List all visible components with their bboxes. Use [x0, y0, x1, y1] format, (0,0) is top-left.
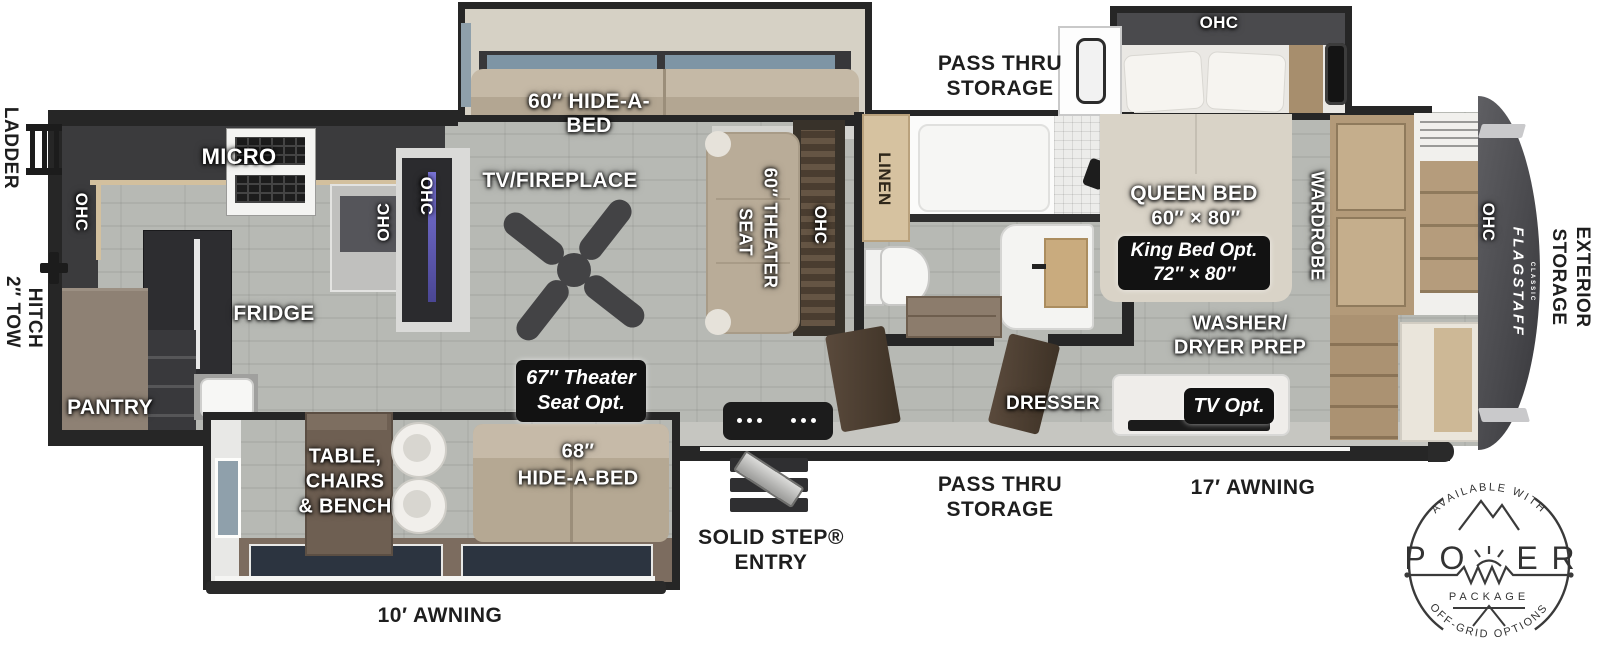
- chair-seat: [403, 434, 431, 462]
- tv-option-label: TV Opt.: [1193, 394, 1264, 419]
- ladder-label: LADDER: [0, 107, 21, 189]
- tow-hitch-label-line2: HITCH: [23, 288, 45, 349]
- burner-grate: [235, 175, 305, 203]
- tow-hitch-label-line1: 2″ TOW: [1, 276, 23, 348]
- slideout-hide-a-bed-60: [458, 2, 872, 122]
- ladder-rung: [54, 130, 59, 170]
- badge-letter-o: O: [1440, 540, 1465, 576]
- awning-roller-rear: [206, 581, 666, 594]
- armrest: [705, 131, 731, 157]
- hitch-bar: [40, 263, 68, 273]
- mat-dot: [791, 418, 796, 423]
- slide-window-pane: [487, 55, 657, 69]
- badge-letter-r: R: [1551, 540, 1574, 576]
- hide-a-bed-60-label-line1: 60″ HIDE-A-: [528, 90, 650, 114]
- washer-dryer-label-line2: DRYER PREP: [1174, 337, 1306, 360]
- washer-dryer-label-line1: WASHER/: [1192, 313, 1287, 336]
- mat-dot: [737, 418, 742, 423]
- exterior-storage-label-line1: EXTERIOR: [1571, 226, 1593, 327]
- wardrobe-cabinet: [1330, 115, 1414, 315]
- pass-thru-top-label-line1: PASS THRU: [938, 52, 1062, 76]
- vent-lines: [1420, 121, 1478, 147]
- king-bed-option-badge: King Bed Opt. 72″ × 80″: [1118, 236, 1270, 290]
- pillow: [1123, 50, 1205, 113]
- awning-roller-endcap: [1428, 441, 1454, 462]
- sofa-cushion-split: [663, 69, 666, 115]
- slide-window-pane: [665, 55, 835, 69]
- ohc-label-entertainment: OHC: [416, 177, 436, 216]
- pantry-label: PANTRY: [67, 396, 153, 420]
- pass-thru-compartment: [1058, 26, 1122, 116]
- ohc-label-theater: OHC: [810, 206, 830, 245]
- step-edge: [908, 315, 996, 317]
- awning-front-label: 17′ AWNING: [1191, 476, 1316, 500]
- cap-accent-strip: [1478, 408, 1530, 422]
- brand-series: CLASSIC: [1529, 262, 1535, 302]
- cabinet-door: [1336, 217, 1406, 307]
- hide-a-bed-60-label-line2: BED: [566, 114, 611, 138]
- range-cooktop: [226, 128, 316, 216]
- solid-step-label-line2: ENTRY: [735, 551, 808, 575]
- armrest: [705, 309, 731, 335]
- linen-label: LINEN: [874, 152, 894, 206]
- power-package-badge: AVAILABLE WITH OFF-GRID OPTIONS P O E R …: [1401, 476, 1577, 652]
- theater-seat-label-line2: SEAT: [735, 208, 756, 256]
- shower-glass: [908, 214, 1122, 222]
- table-chairs-label-line2: CHAIRS: [306, 471, 384, 494]
- ohc-label-rear-corner: OHC: [71, 193, 91, 232]
- bath-wall-bottom-right: [1048, 334, 1134, 346]
- fridge-label: FRIDGE: [233, 302, 314, 326]
- pillow: [1206, 51, 1287, 113]
- counter-edge-vertical: [96, 182, 101, 260]
- pantry-cabinet: [58, 288, 148, 445]
- entry-steps-icon: [730, 458, 812, 520]
- mat-dot: [801, 418, 806, 423]
- dinette-chair: [391, 478, 447, 534]
- table-chairs-label-line1: TABLE,: [309, 446, 382, 469]
- shower: [908, 116, 1122, 222]
- badge-letter-p: P: [1404, 540, 1425, 576]
- cap-accent-strip: [1478, 124, 1526, 138]
- slide-window: [1325, 43, 1347, 105]
- ladder-icon: [26, 124, 62, 176]
- vanity-sink: [1000, 224, 1094, 330]
- tv-option-badge: TV Opt.: [1184, 388, 1274, 424]
- badge-letter-e: E: [1516, 540, 1537, 576]
- exterior-storage-label-line2: STORAGE: [1547, 228, 1569, 325]
- pass-thru-bottom-label-line2: STORAGE: [947, 498, 1054, 522]
- brand-logo: FLAGSTAFF: [1510, 227, 1527, 338]
- theater-seat-option-line2: Seat Opt.: [537, 391, 625, 416]
- slide-side-window: [461, 23, 471, 107]
- faucet-icon: [1032, 264, 1046, 269]
- mat-dot: [757, 418, 762, 423]
- front-ohc-area: [1414, 113, 1486, 315]
- awning-rear-label: 10′ AWNING: [378, 604, 503, 628]
- king-bed-option-line1: King Bed Opt.: [1131, 239, 1258, 263]
- compartment-door: [1076, 38, 1106, 104]
- theater-seat-option-badge: 67″ Theater Seat Opt.: [516, 360, 646, 422]
- bed-seam: [1195, 114, 1197, 174]
- top-wall-rear: [48, 110, 458, 126]
- theater-seat-option-line1: 67″ Theater: [526, 366, 636, 391]
- queen-bed-label-line1: QUEEN BED: [1130, 182, 1258, 206]
- pass-thru-top-label-line2: STORAGE: [947, 77, 1054, 101]
- bedside-cabinet: [1289, 45, 1323, 113]
- closet-door: [1434, 328, 1472, 432]
- base-cabinet: [148, 330, 196, 440]
- dinette-chair: [391, 422, 447, 478]
- theater-seat-label-line1: 60″ THEATER: [760, 168, 781, 289]
- front-closet: [1400, 322, 1488, 442]
- ohc-label-bedroom-slide: OHC: [1200, 13, 1239, 33]
- slide-end-wall: [211, 420, 241, 582]
- ladder-rung: [30, 130, 35, 170]
- queen-bed-label-line2: 60″ × 80″: [1151, 208, 1240, 231]
- micro-label: MICRO: [202, 144, 277, 170]
- badge-package-text: PACKAGE: [1449, 591, 1529, 603]
- ohc-label-island: OHC: [374, 203, 394, 242]
- front-shelves: [1420, 161, 1478, 293]
- front-drawer-stack: [1330, 315, 1398, 440]
- hide-a-bed-68-label-line2: HIDE-A-BED: [518, 468, 639, 491]
- pass-thru-bottom-label-line1: PASS THRU: [938, 473, 1062, 497]
- chair-seat: [403, 490, 431, 518]
- solid-step-label-line1: SOLID STEP®: [698, 526, 844, 550]
- ceiling-fan-icon: [484, 182, 664, 358]
- bottom-wall-rear: [48, 430, 208, 446]
- cabinet-door: [1336, 123, 1406, 211]
- dresser-label: DRESSER: [1006, 393, 1100, 415]
- ohc-label-front: OHC: [1478, 203, 1498, 242]
- medicine-cabinet: [1044, 238, 1088, 308]
- slide-end-window: [215, 458, 241, 538]
- hide-a-bed-68-label-line1: 68″: [562, 441, 595, 464]
- awning-rail-front: [700, 447, 1350, 451]
- king-bed-option-line2: 72″ × 80″: [1153, 263, 1235, 287]
- table-chairs-label-line3: & BENCH: [298, 496, 391, 519]
- ladder-rung: [42, 130, 47, 170]
- mat-dot: [811, 418, 816, 423]
- floorplan-canvas: LADDER 2″ TOW HITCH PASS THRU STORAGE SO…: [0, 0, 1600, 667]
- wardrobe-label: WARDROBE: [1307, 171, 1328, 280]
- slideout-dinette: [203, 412, 680, 590]
- bench: [307, 414, 387, 430]
- shower-pan: [918, 124, 1050, 212]
- tv-fireplace-label: TV/FIREPLACE: [482, 169, 637, 193]
- mat-dot: [747, 418, 752, 423]
- entry-mat: [723, 402, 833, 440]
- tow-hitch-icon: [40, 252, 68, 284]
- bedroom-steps: [906, 296, 1002, 338]
